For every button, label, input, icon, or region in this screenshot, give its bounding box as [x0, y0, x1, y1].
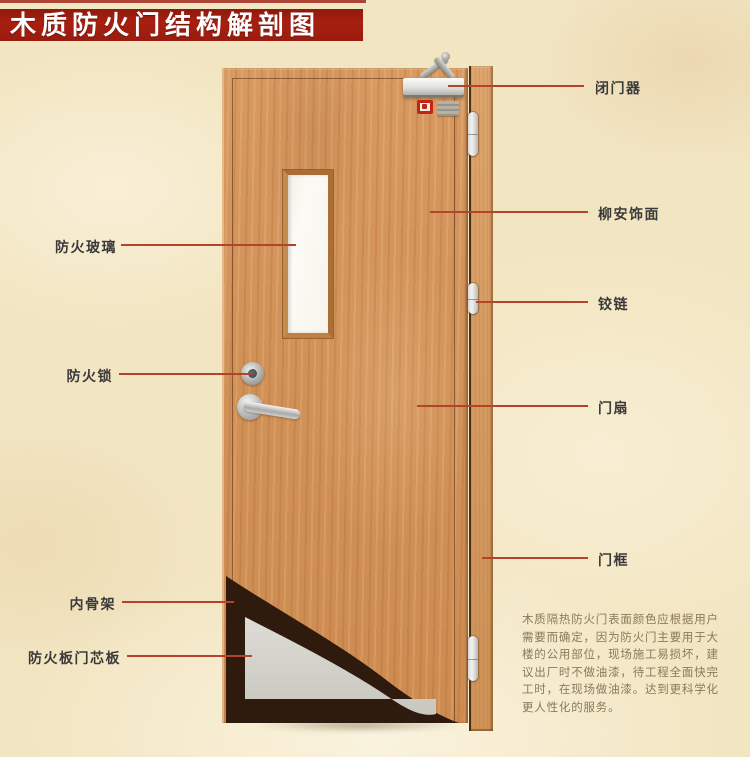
leader-line-fire-glass [121, 244, 296, 246]
leader-line-inner-frame [122, 601, 234, 603]
label-door-closer: 闭门器 [595, 78, 642, 98]
leader-line-door-frame [482, 557, 588, 559]
vision-window [283, 170, 333, 338]
description-line: 楼的公用部位，现场施工易损坏，建 [522, 647, 719, 665]
label-door-leaf: 门扇 [598, 398, 629, 418]
leader-line-fire-board-core [127, 655, 252, 657]
leader-line-door-closer [448, 85, 584, 87]
hinge-middle [468, 283, 478, 314]
fire-glass-pane [288, 175, 328, 333]
fire-certification-mark [417, 100, 433, 114]
door-leaf-illustration [222, 68, 468, 723]
fire-door-diagram-poster: 木质防火门结构解剖图 防火玻璃 防火锁 [0, 0, 750, 757]
hinge-bottom [468, 636, 478, 681]
label-lauan-veneer: 柳安饰面 [598, 204, 660, 224]
label-fire-lock: 防火锁 [67, 366, 114, 386]
title-banner: 木质防火门结构解剖图 [0, 9, 363, 41]
door-frame-illustration [469, 66, 493, 731]
leader-line-lauan-veneer [430, 211, 588, 213]
description-line: 更人性化的服务。 [522, 700, 719, 718]
leader-line-door-leaf [417, 405, 588, 407]
description-line: 需要而确定，因为防火门主要用于大 [522, 630, 719, 648]
door-closer-illustration [403, 78, 464, 97]
product-nameplate [437, 101, 459, 116]
description-line: 木质隔热防火门表面颜色应根据用户 [522, 612, 719, 630]
description-text: 木质隔热防火门表面颜色应根据用户 需要而确定，因为防火门主要用于大 楼的公用部位… [522, 612, 719, 718]
top-edge-strip [0, 0, 366, 3]
door-closer-arm-joint [441, 52, 450, 61]
label-door-frame: 门框 [598, 550, 629, 570]
label-hinge: 铰链 [598, 294, 629, 314]
leader-line-fire-lock [119, 373, 249, 375]
page-title: 木质防火门结构解剖图 [0, 12, 320, 38]
label-fire-glass: 防火玻璃 [55, 237, 117, 257]
leader-line-hinge [476, 301, 588, 303]
cutaway-section [222, 68, 468, 723]
description-line: 议出厂时不做油漆，待工程全面快完 [522, 665, 719, 683]
label-fire-board-core: 防火板门芯板 [28, 648, 121, 668]
description-line: 工时，在现场做油漆。达到更科学化 [522, 682, 719, 700]
hinge-top [468, 112, 478, 156]
label-inner-frame: 内骨架 [70, 594, 117, 614]
